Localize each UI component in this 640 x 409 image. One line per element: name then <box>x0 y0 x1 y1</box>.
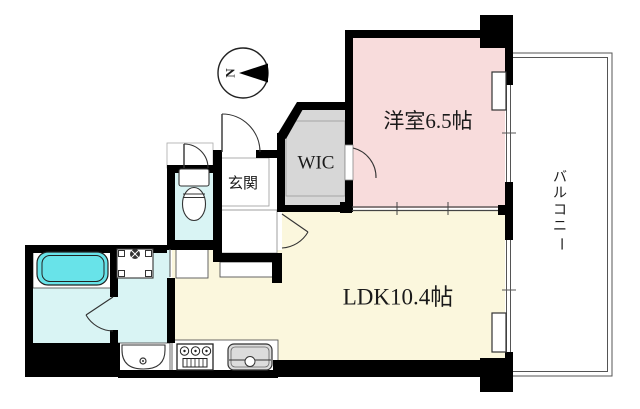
kitchen-sink <box>228 344 272 370</box>
washbasin <box>122 345 165 369</box>
entrance-door <box>222 114 260 152</box>
bathtub <box>37 252 108 285</box>
refrigerator-space <box>176 248 208 278</box>
stove <box>177 344 213 370</box>
balcony-label: バ ル コ ニ ー <box>553 171 568 252</box>
svg-text:バ: バ <box>553 171 567 186</box>
compass-north-label: N <box>223 68 238 78</box>
svg-text:ル: ル <box>553 187 567 202</box>
svg-text:コ: コ <box>553 204 567 219</box>
washing-machine-pan <box>117 249 153 278</box>
compass: N <box>218 48 268 98</box>
entrance-nook <box>167 143 213 168</box>
entrance-label: 玄関 <box>228 175 258 192</box>
svg-text:ー: ー <box>553 237 568 251</box>
window-panel <box>492 313 506 352</box>
floor-plan-page: N 洋室6.5帖 LDK10.4帖 WIC 玄関 バ ル コ ニ ー <box>0 0 640 409</box>
ldk-label: LDK10.4帖 <box>343 285 454 310</box>
floor-plan: N 洋室6.5帖 LDK10.4帖 WIC 玄関 バ ル コ ニ ー <box>0 0 640 409</box>
storage-cabinet <box>220 262 275 277</box>
window-panel <box>492 72 506 110</box>
corridor <box>219 210 277 253</box>
svg-text:ニ: ニ <box>553 220 567 235</box>
wic-label: WIC <box>298 153 335 174</box>
bedroom-label: 洋室6.5帖 <box>383 109 472 133</box>
